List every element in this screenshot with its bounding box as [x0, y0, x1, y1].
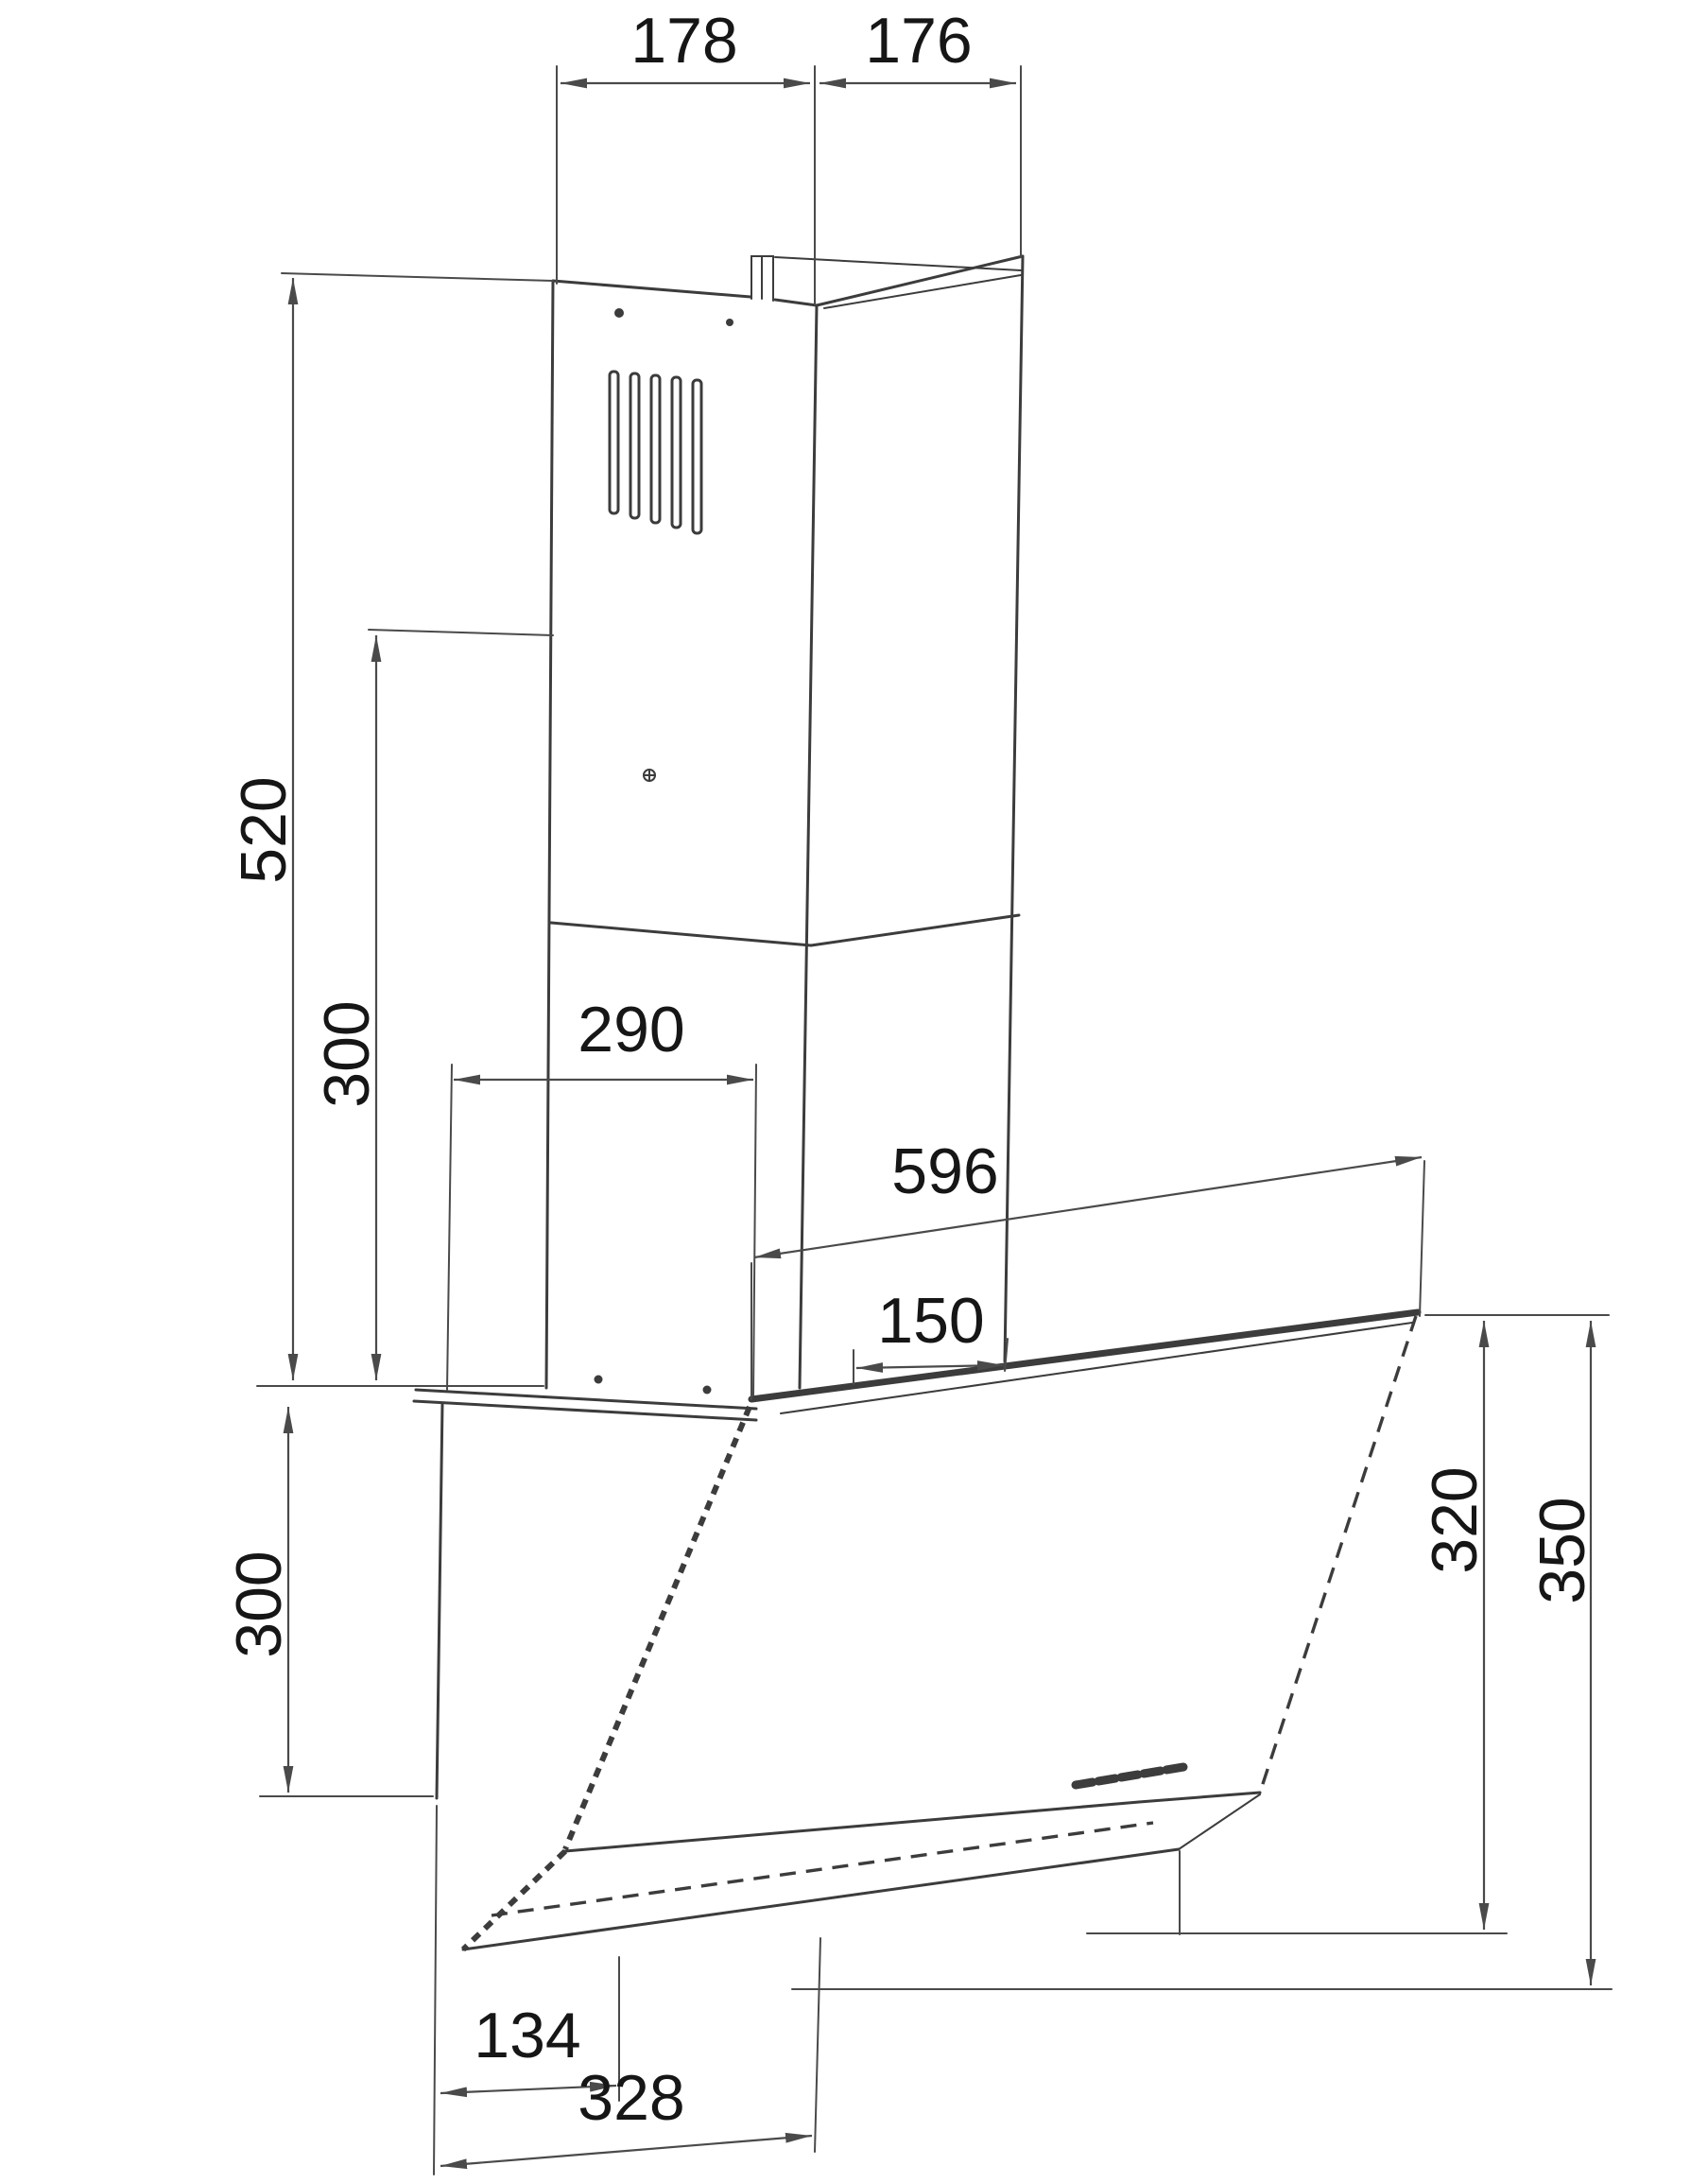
cooker-hood-dimension-drawing: 178 176 520 300 290 596 150 300 320 350 …	[0, 0, 1708, 2183]
dim-label-glass-panel-height: 320	[1419, 1466, 1491, 1573]
glass-right-edge	[1260, 1316, 1416, 1793]
chimney-front-top-edge	[553, 281, 817, 305]
hood-bottom-right-edge	[1179, 1794, 1260, 1849]
dim-label-bottom-total-depth: 328	[578, 2062, 684, 2134]
chimney-top-opening-back-edge	[775, 257, 1021, 270]
dim-label-back-body-height: 300	[223, 1551, 295, 1657]
chimney-left-edge	[546, 281, 553, 1388]
hood-bottom-hidden-edge	[492, 1823, 1153, 1915]
dim-label-bottom-rear-depth: 134	[474, 2000, 580, 2071]
chimney-right-edge	[800, 305, 817, 1388]
dim-label-chimney-lower-height: 300	[311, 1000, 383, 1107]
dim-label-mounting-bracket-width: 290	[578, 994, 684, 1066]
wall-mounting-rail	[414, 1390, 756, 1420]
rail-bottom-line	[414, 1401, 756, 1420]
chimney-section-junction-front	[551, 923, 811, 945]
control-buttons	[1076, 1767, 1183, 1785]
hood-back-left-edge	[437, 1403, 442, 1798]
chimney-duct	[546, 256, 1023, 1395]
chimney-mounting-tab	[751, 256, 773, 301]
dim-label-chimney-front-width: 178	[630, 5, 737, 77]
glass-bottom-edge	[565, 1802, 1139, 1851]
hood-body	[437, 1312, 1418, 1949]
dim-label-total-front-height: 350	[1527, 1497, 1598, 1603]
hood-top-edge	[751, 1312, 1418, 1399]
dim-label-hood-top-width: 596	[891, 1135, 998, 1207]
glass-left-edge	[565, 1407, 750, 1849]
dim-line-328	[440, 2136, 812, 2166]
dim-label-duct-outlet-offset: 150	[877, 1285, 984, 1357]
glass-bottom-step	[1139, 1793, 1260, 1802]
dimension-labels: 178 176 520 300 290 596 150 300 320 350 …	[223, 5, 1598, 2134]
hood-bottom-front-edge	[463, 1849, 1179, 1949]
hood-bottom-left-edge	[463, 1851, 565, 1949]
chimney-screws	[595, 308, 734, 1395]
chimney-back-right-edge	[1005, 256, 1023, 1361]
extension-lines	[257, 66, 1612, 2174]
dim-label-chimney-upper-height: 520	[228, 776, 300, 883]
dim-line-596	[754, 1157, 1422, 1257]
chimney-vent-slots	[610, 372, 701, 533]
chimney-section-junction-side	[811, 915, 1019, 945]
dim-label-chimney-side-depth: 176	[865, 5, 972, 77]
dimension-drawing-page: 178 176 520 300 290 596 150 300 320 350 …	[0, 0, 1708, 2183]
